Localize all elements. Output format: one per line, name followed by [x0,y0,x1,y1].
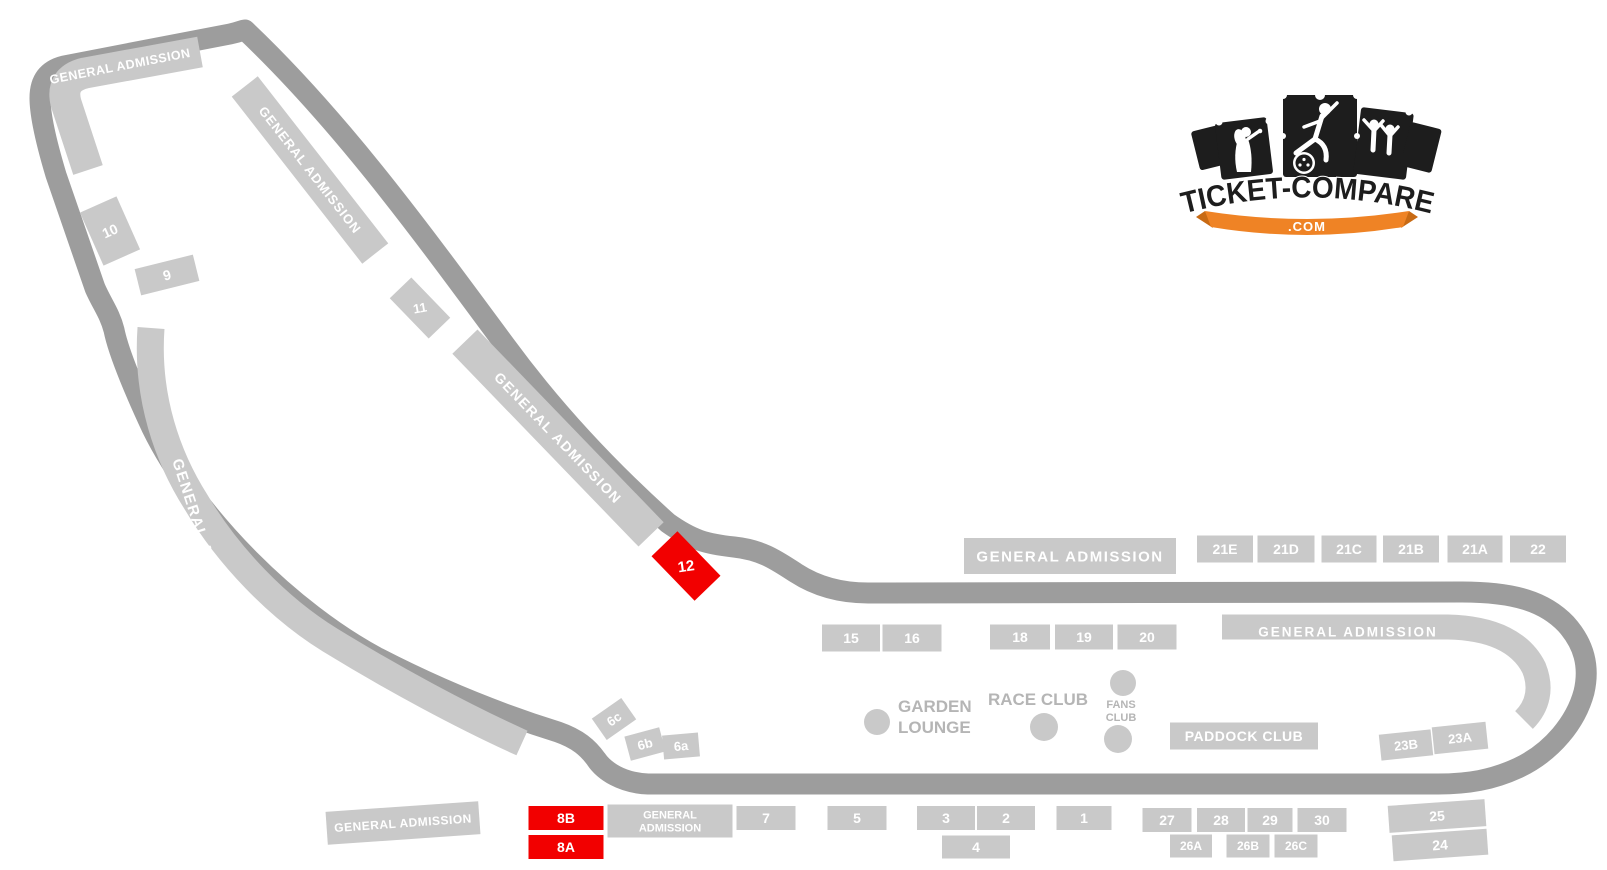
logo-domain: .COM [1288,219,1326,234]
stand-6a[interactable]: 6a [662,732,700,759]
stand-5[interactable]: 5 [828,806,887,830]
stand-16-label: 16 [904,630,920,646]
stand-26C-label: 26C [1285,839,1307,853]
stand-3-label: 3 [942,810,950,826]
stand-28[interactable]: 28 [1197,808,1245,832]
stand-19[interactable]: 19 [1055,625,1113,650]
stand-26A-label: 26A [1180,839,1202,853]
ga-parabolica-stand[interactable] [1222,627,1538,720]
stand-2[interactable]: 2 [977,806,1035,830]
stand-22[interactable]: 22 [1510,536,1566,563]
stand-16[interactable]: 16 [883,625,942,652]
stand-22-label: 22 [1530,541,1546,557]
stand-21C[interactable]: 21C [1322,536,1377,563]
stand-21D-label: 21D [1273,541,1299,557]
stand-26B[interactable]: 26B [1227,835,1270,858]
stand-1[interactable]: 1 [1057,806,1112,830]
stand-ga-main[interactable]: GENERAL ADMISSION [964,538,1176,574]
stand-6c[interactable]: 6c [592,698,636,740]
ga-parabolica-label: GENERAL ADMISSION [1258,625,1438,640]
stand-23A[interactable]: 23A [1432,722,1489,754]
stand-23B-label: 23B [1393,736,1418,753]
stand-8A-label: 8A [557,839,575,855]
circuit-map: 109GENERAL ADMISSION11GENERAL ADMISSION1… [0,0,1607,870]
stand-29-label: 29 [1262,812,1278,828]
stand-26C[interactable]: 26C [1275,835,1318,858]
garden-lounge-marker [864,709,890,735]
stand-7-label: 7 [762,810,770,826]
stand-26B-label: 26B [1237,839,1259,853]
stand-12-label: 12 [677,557,696,576]
stand-4-label: 4 [972,839,980,855]
fans-club-lower-marker [1104,725,1132,753]
stand-20[interactable]: 20 [1118,625,1177,650]
stand-11-label: 11 [412,299,428,316]
stand-20-label: 20 [1139,629,1155,645]
stand-15[interactable]: 15 [822,625,880,652]
logo-ribbon: .COM [1196,211,1418,235]
stand-27[interactable]: 27 [1143,808,1192,832]
stand-ga-start[interactable]: GENERALADMISSION [608,805,733,838]
stand-3[interactable]: 3 [917,806,975,830]
stand-30[interactable]: 30 [1298,808,1347,832]
stand-ga-back-upper-label: GENERAL ADMISSION [256,104,365,237]
stand-ga-bottom[interactable]: GENERAL ADMISSION [326,801,481,845]
ticket-compare-logo: TICKET-COMPARE .COM [1165,75,1450,235]
stand-9[interactable]: 9 [135,255,200,296]
stand-6b[interactable]: 6b [624,727,665,760]
stand-18[interactable]: 18 [990,625,1050,650]
stand-paddock-club-label: PADDOCK CLUB [1185,728,1304,744]
stand-7[interactable]: 7 [737,806,796,830]
stand-24-label: 24 [1432,836,1449,853]
stand-30-label: 30 [1314,812,1330,828]
stand-ga-back-lower-label: GENERAL ADMISSION [491,369,625,507]
stand-1-label: 1 [1080,810,1088,826]
stand-8B[interactable]: 8B [529,806,604,830]
stand-2-label: 2 [1002,810,1010,826]
stand-18-label: 18 [1012,629,1028,645]
stand-21D[interactable]: 21D [1258,536,1315,563]
stand-21E[interactable]: 21E [1197,536,1253,563]
football-icon [1293,152,1315,174]
logo-tickets-icon [1191,90,1442,180]
stand-ga-main-label: GENERAL ADMISSION [976,548,1163,565]
stand-21B-label: 21B [1398,541,1424,557]
fans-club-upper-marker [1110,670,1136,696]
stand-25-label: 25 [1429,807,1446,824]
race-club-marker [1030,713,1058,741]
race-club-label: RACE CLUB [988,690,1088,709]
stand-15-label: 15 [843,630,859,646]
stand-paddock-club[interactable]: PADDOCK CLUB [1170,723,1318,750]
stand-21A-label: 21A [1462,541,1488,557]
stand-5-label: 5 [853,810,861,826]
stand-8B-label: 8B [557,810,575,826]
stand-19-label: 19 [1076,629,1092,645]
stand-23A-label: 23A [1447,729,1473,746]
stand-23B[interactable]: 23B [1379,729,1433,760]
stand-8A[interactable]: 8A [529,835,604,859]
stand-28-label: 28 [1213,812,1229,828]
garden-lounge-label: GARDENLOUNGE [898,697,972,737]
stand-24[interactable]: 24 [1392,829,1489,862]
stand-6a-label: 6a [673,738,689,754]
stand-21C-label: 21C [1336,541,1362,557]
stand-29[interactable]: 29 [1248,808,1293,832]
stand-ga-start-label: GENERALADMISSION [639,809,701,834]
fans-club-label: FANSCLUB [1106,699,1137,724]
stand-11[interactable]: 11 [390,277,450,338]
stand-27-label: 27 [1159,812,1175,828]
stand-26A[interactable]: 26A [1170,835,1212,858]
stand-21B[interactable]: 21B [1383,536,1439,563]
stand-4[interactable]: 4 [942,836,1010,859]
stand-ga-back-lower[interactable]: GENERAL ADMISSION [452,329,663,546]
stand-25[interactable]: 25 [1388,799,1487,833]
stand-21E-label: 21E [1213,541,1238,557]
stand-21A[interactable]: 21A [1448,536,1503,563]
